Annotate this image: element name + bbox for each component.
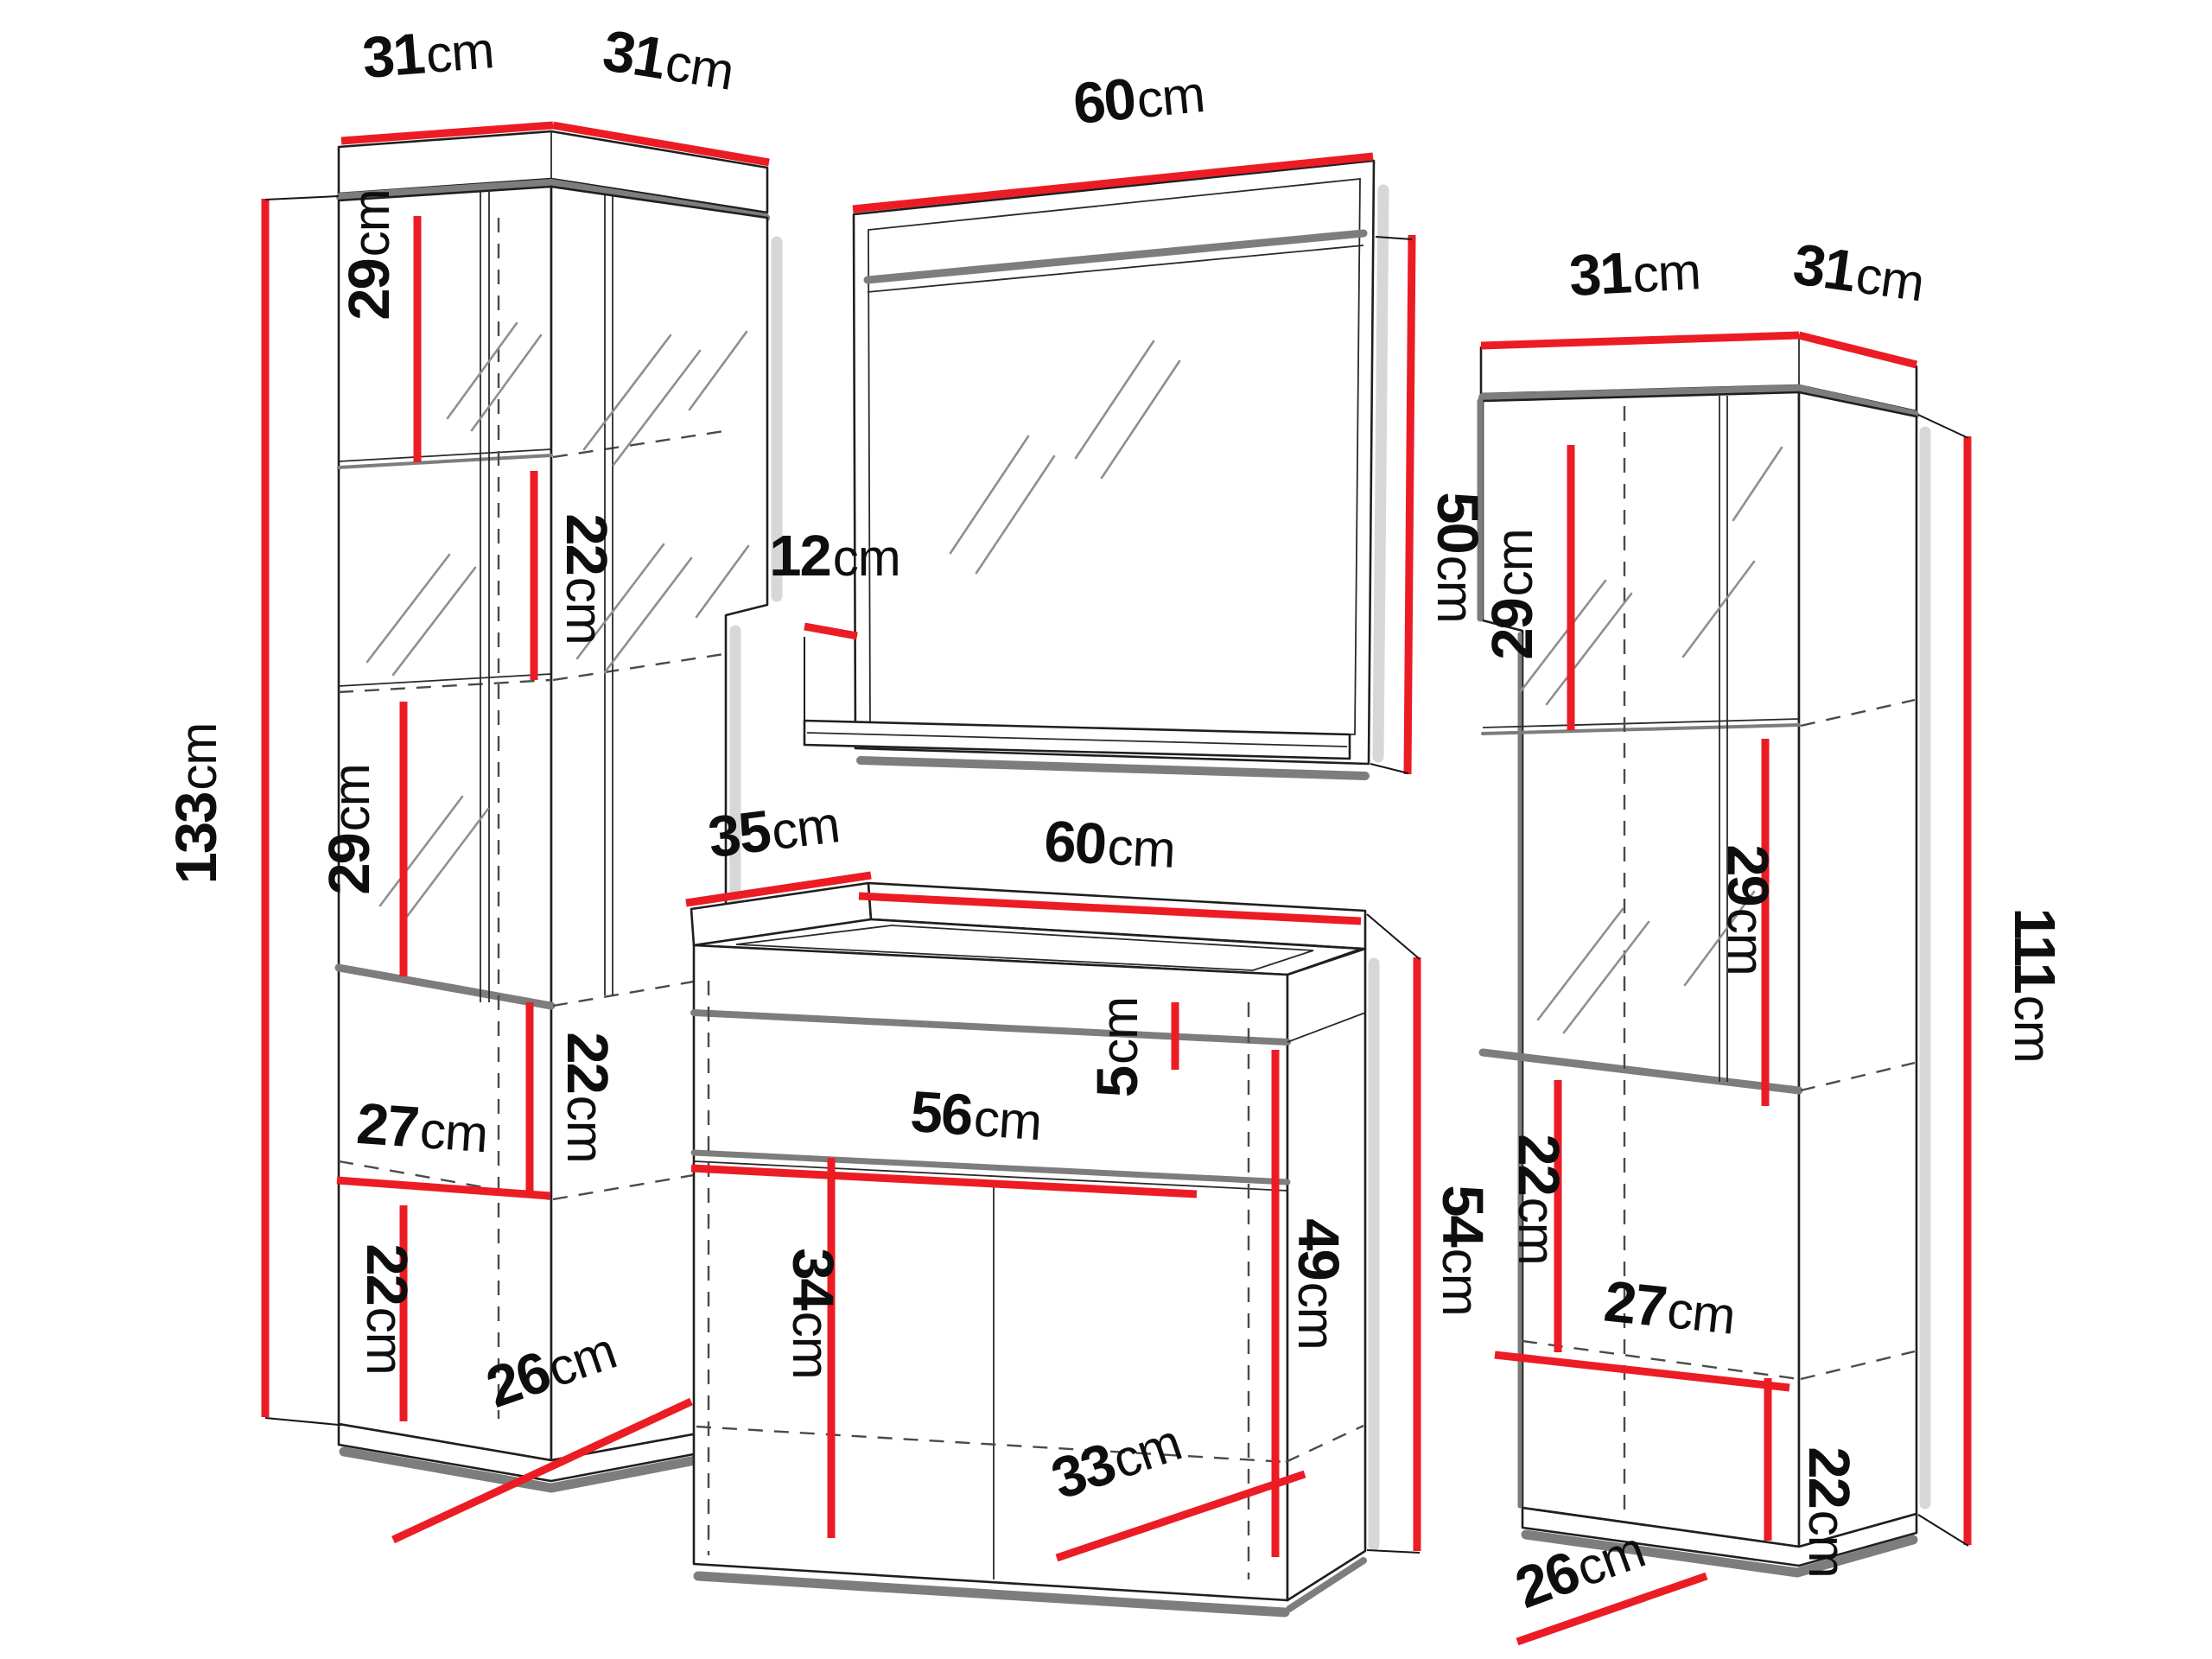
- dim-label-right-bottom-shelf: 22cm: [1796, 1446, 1861, 1578]
- dim-label-right-top-front: 31cm: [1789, 232, 1928, 314]
- dim-line-mirror-ledge-depth: [804, 626, 857, 636]
- dim-label-left-top-front: 31cm: [360, 16, 496, 91]
- dim-label-mirror-width: 60cm: [1071, 60, 1207, 137]
- dim-label-left-open-shelf: 22cm: [555, 1032, 620, 1163]
- diagram-canvas: 31cm 31cm 133cm 29cm 22cm 29cm 22cm 27cm…: [0, 0, 2212, 1659]
- right-cabinet-side-face: [1799, 392, 1916, 1547]
- dim-label-right-middle-shelf: 29cm: [1715, 844, 1780, 976]
- dim-label-mirror-ledge: 12cm: [769, 524, 900, 588]
- dim-label-left-glass-shelf: 22cm: [554, 513, 619, 645]
- dim-label-vanity-total-height: 54cm: [1430, 1185, 1495, 1316]
- right-cabinet-drawing: [1480, 337, 1925, 1573]
- dim-label-right-height: 111cm: [2002, 907, 2067, 1062]
- dim-label-left-height: 133cm: [164, 723, 229, 885]
- dim-label-right-top-shelf: 29cm: [1480, 529, 1545, 660]
- dim-label-left-top-side: 31cm: [599, 18, 738, 103]
- mirror-drawing: [804, 161, 1383, 776]
- dim-label-vanity-top-width: 60cm: [1043, 809, 1177, 880]
- dim-line-mirror-height: [1408, 235, 1412, 774]
- dim-label-left-middle-shelf: 29cm: [317, 764, 382, 895]
- dim-label-vanity-side-height: 49cm: [1286, 1218, 1351, 1350]
- dim-label-right-top-side: 31cm: [1567, 237, 1701, 308]
- furniture-dimension-diagram: 31cm 31cm 133cm 29cm 22cm 29cm 22cm 27cm…: [0, 0, 2212, 1659]
- dim-label-vanity-worktop-height: 5cm: [1085, 997, 1150, 1097]
- dim-label-right-open-shelf: 22cm: [1506, 1134, 1571, 1265]
- dim-label-left-top-shelf: 29cm: [337, 189, 402, 321]
- dim-label-vanity-door-inner-height: 34cm: [780, 1248, 845, 1379]
- dim-label-left-bottom-shelf: 22cm: [354, 1243, 419, 1375]
